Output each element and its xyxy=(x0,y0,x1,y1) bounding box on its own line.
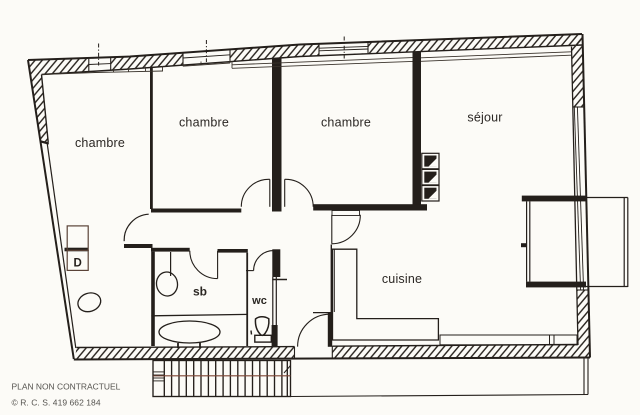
svg-text:séjour: séjour xyxy=(467,111,502,125)
svg-text:chambre: chambre xyxy=(75,136,125,150)
svg-text:chambre: chambre xyxy=(179,116,229,130)
svg-text:sb: sb xyxy=(193,285,207,299)
svg-text:wc: wc xyxy=(251,295,267,307)
svg-text:chambre: chambre xyxy=(321,116,371,130)
svg-text:PLAN NON CONTRACTUEL: PLAN NON CONTRACTUEL xyxy=(12,382,121,392)
svg-text:D: D xyxy=(74,258,82,270)
svg-text:© R. C. S. 419 662 184: © R. C. S. 419 662 184 xyxy=(12,398,101,408)
svg-text:cuisine: cuisine xyxy=(382,272,422,286)
